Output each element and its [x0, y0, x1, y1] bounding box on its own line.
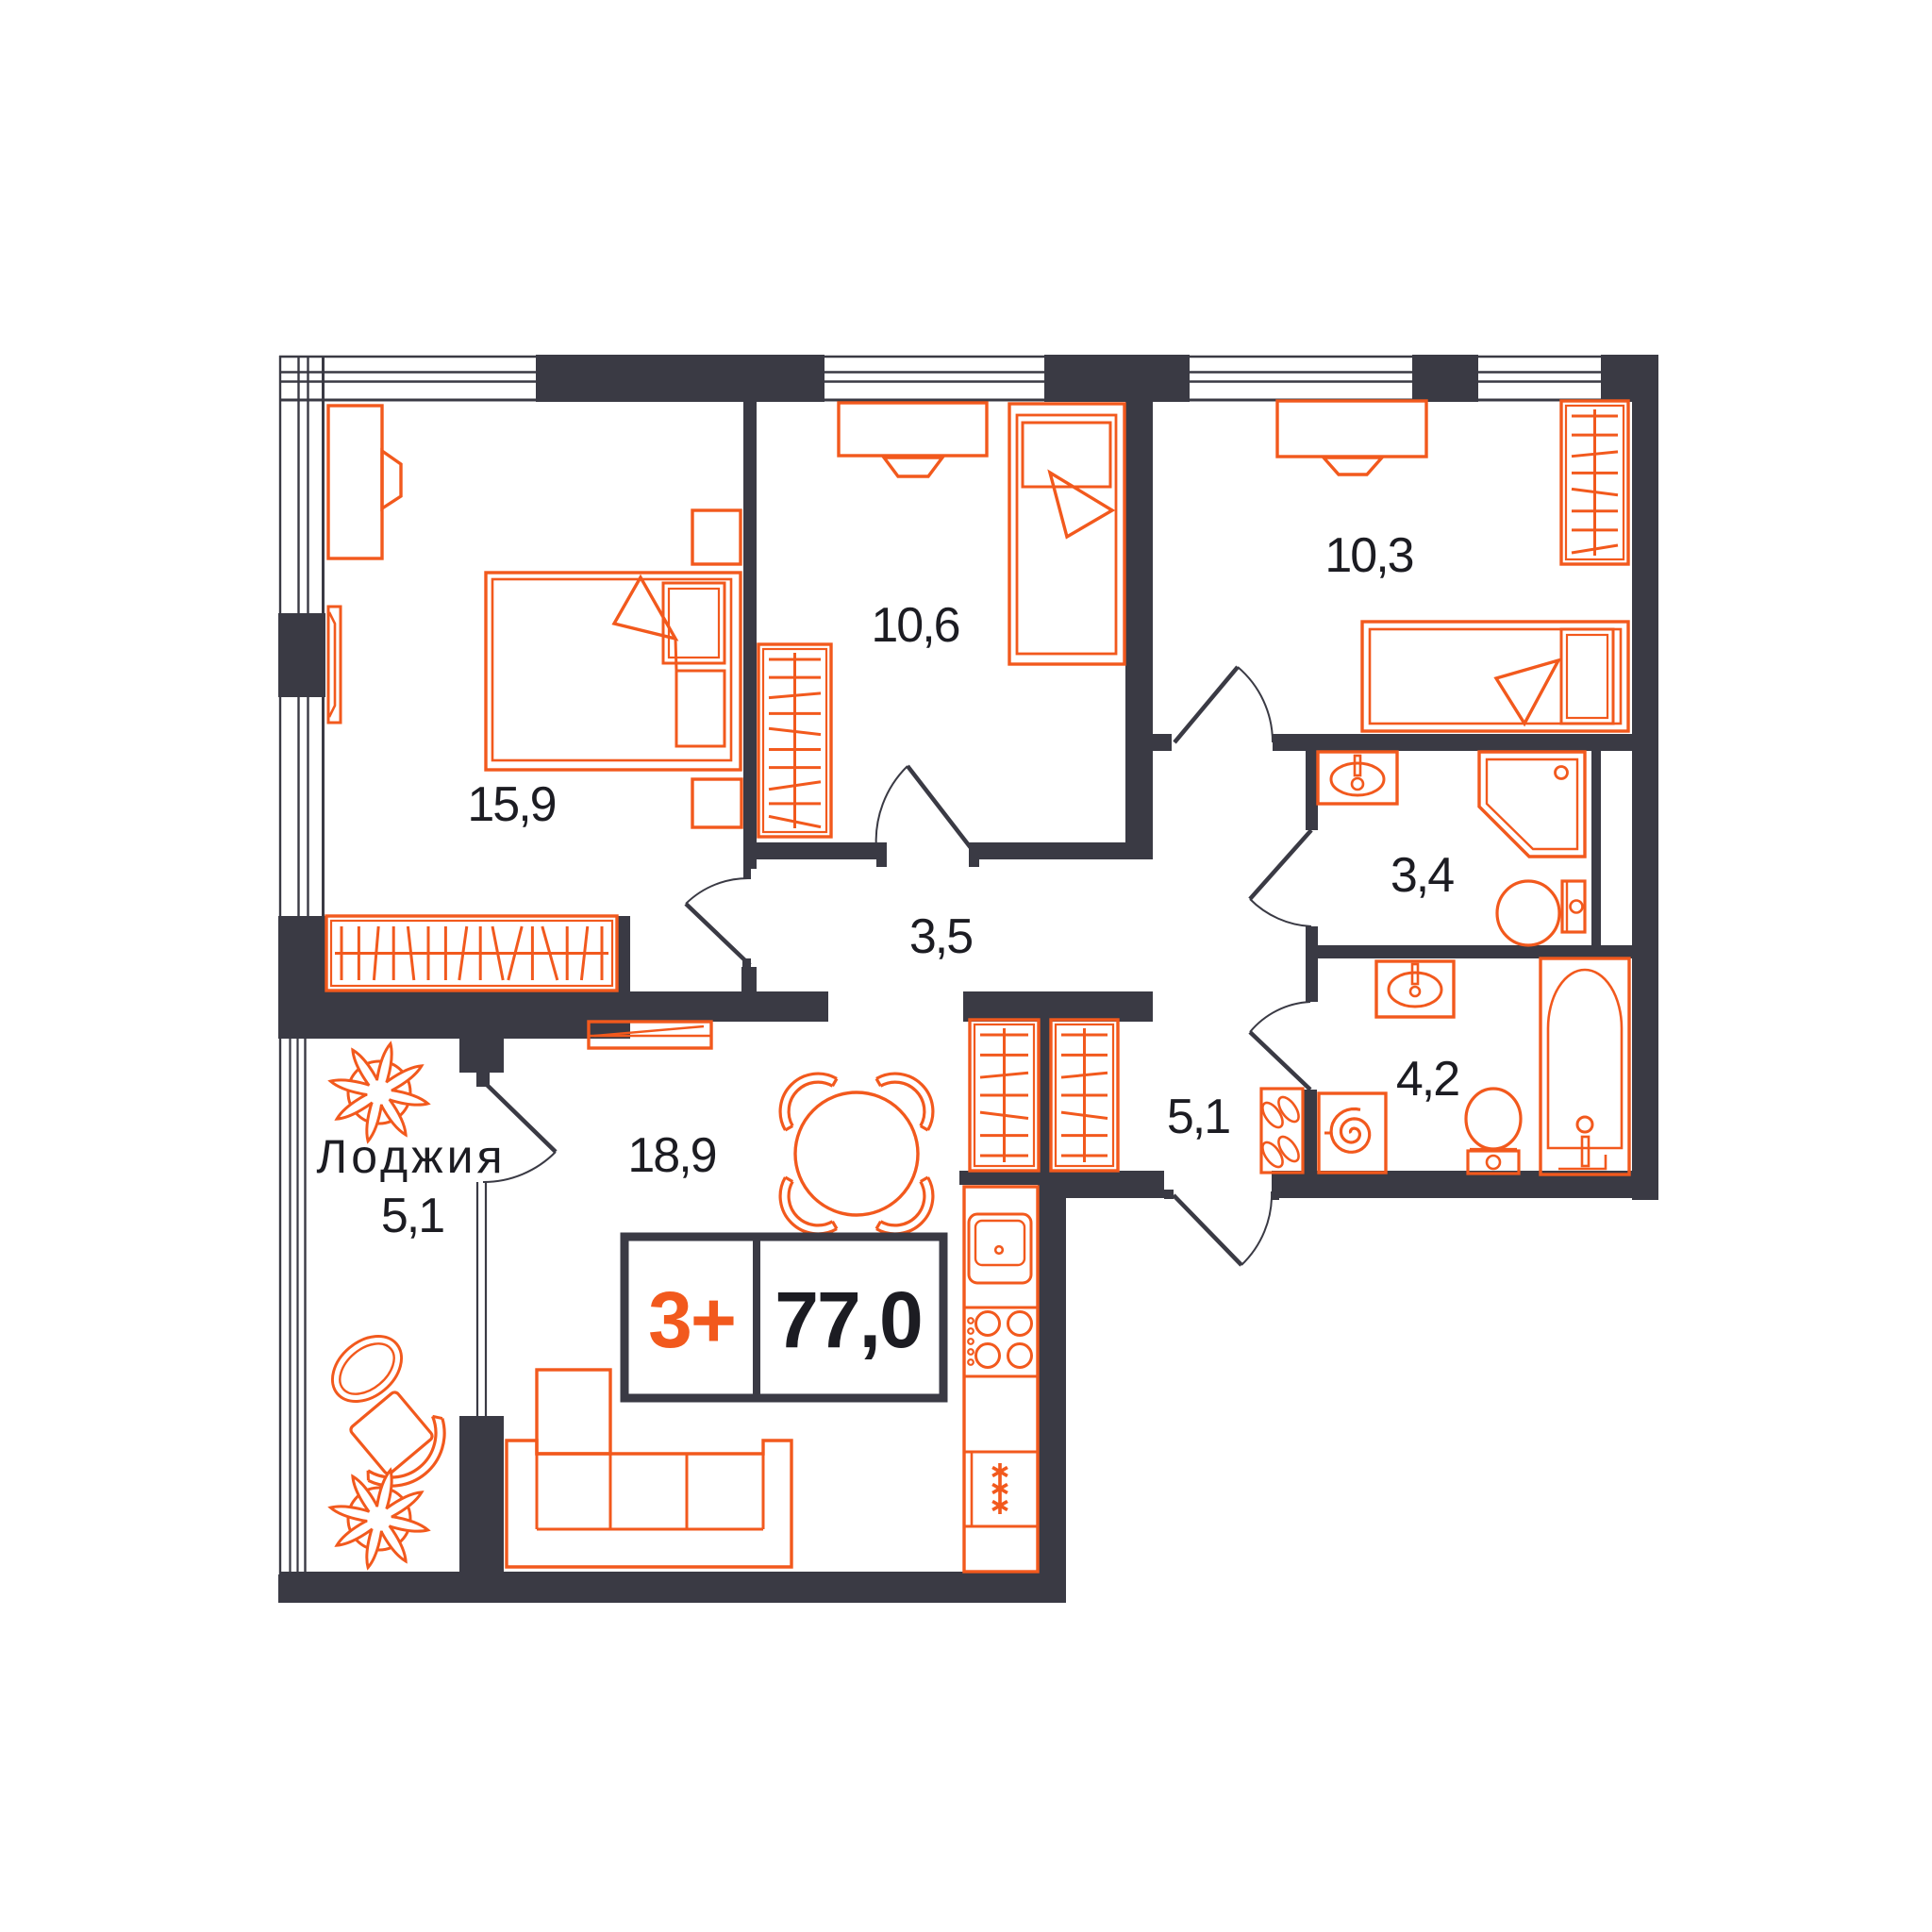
svg-text:3,5: 3,5 — [909, 909, 972, 964]
svg-text:3,4: 3,4 — [1391, 848, 1454, 903]
svg-text:77,0: 77,0 — [774, 1275, 922, 1364]
svg-text:15,9: 15,9 — [467, 777, 555, 832]
svg-text:5,1: 5,1 — [381, 1189, 443, 1243]
svg-text:10,6: 10,6 — [871, 598, 958, 653]
svg-text:18,9: 18,9 — [627, 1128, 715, 1183]
svg-text:3+: 3+ — [648, 1275, 735, 1364]
svg-text:5,1: 5,1 — [1167, 1090, 1229, 1144]
svg-text:10,3: 10,3 — [1324, 528, 1412, 583]
svg-text:Лоджия: Лоджия — [316, 1130, 506, 1183]
svg-text:4,2: 4,2 — [1396, 1052, 1458, 1107]
